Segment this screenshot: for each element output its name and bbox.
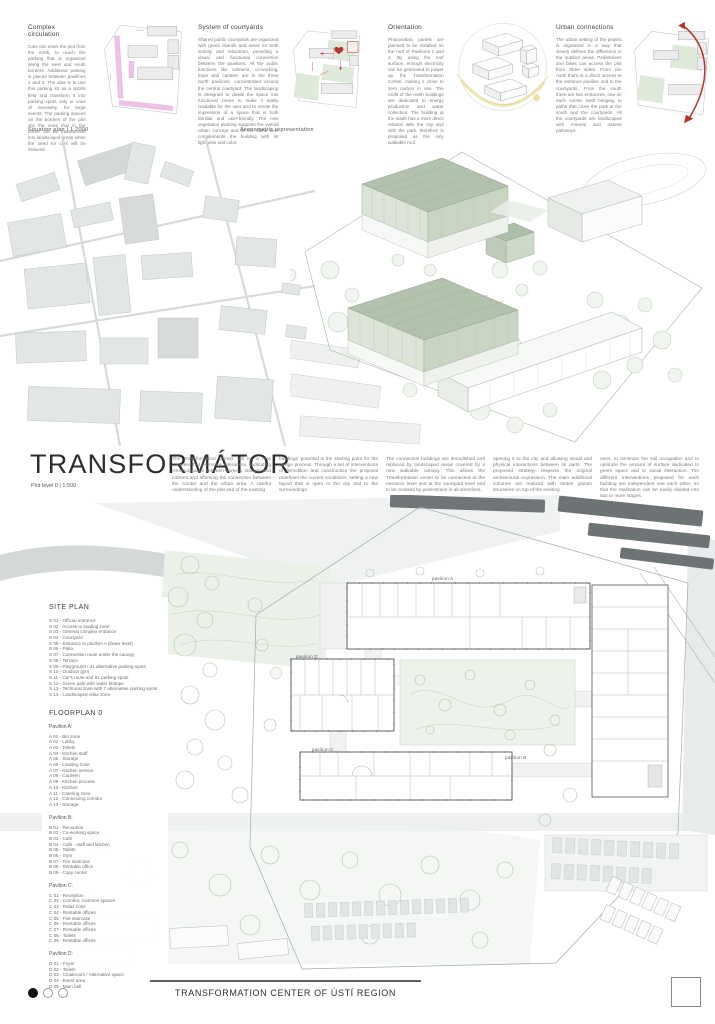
pavilion-b-legend-list: B 01 - ReceptionB 02 - Co-working spaceB… [49, 825, 161, 876]
site-plan-legend-list: S 01 - Official entranceS 02 - Access to… [49, 618, 161, 698]
page-dot-3[interactable] [58, 988, 68, 998]
legend-line: A 13 - Storage [49, 802, 161, 808]
pavilion-a-legend-list: A 01 - Bin zoneA 02 - LobbyA 03 - Toilet… [49, 734, 161, 808]
axonometric-label: Axonometric representation [240, 127, 314, 133]
section-text: Orientation Photovoltaic panels are plan… [388, 20, 444, 146]
pavilion-d-legend-list: D 01 - FoyerD 02 - ToiletsD 03 - Cloakro… [49, 961, 161, 989]
presentation-board: Complex circulation Cars can enter the p… [0, 0, 715, 1024]
intro-column: opening it to the city and allowing visu… [493, 457, 592, 494]
page-dot-1[interactable] [28, 988, 38, 998]
pavilion-c-legend-title: Pavilion C: [49, 883, 161, 889]
connections-diagram [627, 20, 712, 128]
pavilion-d-plan [291, 659, 394, 731]
section-complex-circulation: Complex circulation Cars can enter the p… [28, 20, 188, 153]
section-body: Photovoltaic panels are planned to be in… [388, 37, 444, 146]
section-text: Complex circulation Cars can enter the p… [28, 20, 86, 153]
plan-legend: SITE PLAN S 01 - Official entranceS 02 -… [42, 597, 168, 997]
pavilion-a-label: pavilion A [432, 576, 453, 581]
axon-buildings [473, 33, 539, 101]
pavilion-b-label: pavilion B [505, 755, 527, 760]
site-plan-legend-title: SITE PLAN [49, 604, 161, 611]
buildings [128, 26, 179, 80]
footer-rule [150, 980, 421, 982]
pavilion-c-plan [300, 752, 512, 800]
legend-line: S 14 - Landscaped relax zone [49, 692, 161, 698]
courtyard [400, 660, 575, 745]
section-text: Urban connections The urban setting of t… [556, 20, 622, 134]
pavilion-a-plan [347, 583, 590, 649]
pavilion-b-legend-title: Pavilion B: [49, 815, 161, 821]
east-connector [548, 180, 642, 242]
intro-column: buildings' potential is the starting poi… [279, 457, 378, 494]
situation-plan-label: Situation plan | 1:2000 [28, 127, 88, 133]
pavilion-a-legend-title: Pavilion A: [49, 724, 161, 730]
intro-column: ones, to minimize the soil occupation an… [600, 457, 699, 501]
section-title: System of courtyards [198, 24, 278, 31]
section-title: Orientation [388, 24, 444, 31]
orientation-diagram [449, 20, 552, 122]
footer-title: TRANSFORMATION CENTER OF ÚSTÍ REGION [150, 988, 421, 998]
pavilion-b-wing-plan [592, 585, 668, 797]
highlighted-building [348, 41, 358, 52]
axonometric-drawing [290, 140, 715, 450]
section-body: The urban setting of the project is orga… [556, 37, 622, 134]
section-title: Urban connections [556, 24, 622, 31]
park-green-north [158, 550, 330, 670]
circulation-diagram [91, 20, 188, 122]
intro-column: The connection buildings are demolished … [386, 457, 485, 494]
situation-map [0, 136, 315, 446]
legend-line: B 09 - Copy center [49, 870, 161, 876]
pond [270, 667, 282, 679]
page-indicator [28, 988, 68, 998]
pavilion-c-legend-list: C 01 - ReceptionC 02 - Corridor, common … [49, 893, 161, 944]
logo-placeholder-box [671, 977, 701, 1007]
intro-column: The Transformation Center will be a new … [172, 457, 271, 494]
section-orientation: Orientation Photovoltaic panels are plan… [388, 20, 552, 146]
pavilion-d-legend-title: Pavilion D: [49, 951, 161, 957]
legend-line: C 09 - Rentable offices [49, 938, 161, 944]
sun-icon [533, 94, 540, 101]
city-blocks [7, 142, 306, 424]
pavilion-c-label: pavilion C [312, 747, 334, 752]
page-dot-2[interactable] [43, 988, 53, 998]
courtyards-diagram [283, 20, 362, 122]
section-title: Complex circulation [28, 24, 86, 38]
floorplan-legend-title: FLOORPLAN 0 [49, 710, 161, 717]
pavilion-d-label: pavilion D [296, 654, 318, 659]
section-urban-connections: Urban connections The urban setting of t… [556, 20, 712, 134]
plot-level-label: Plot level 0 | 1:500 [31, 483, 76, 489]
